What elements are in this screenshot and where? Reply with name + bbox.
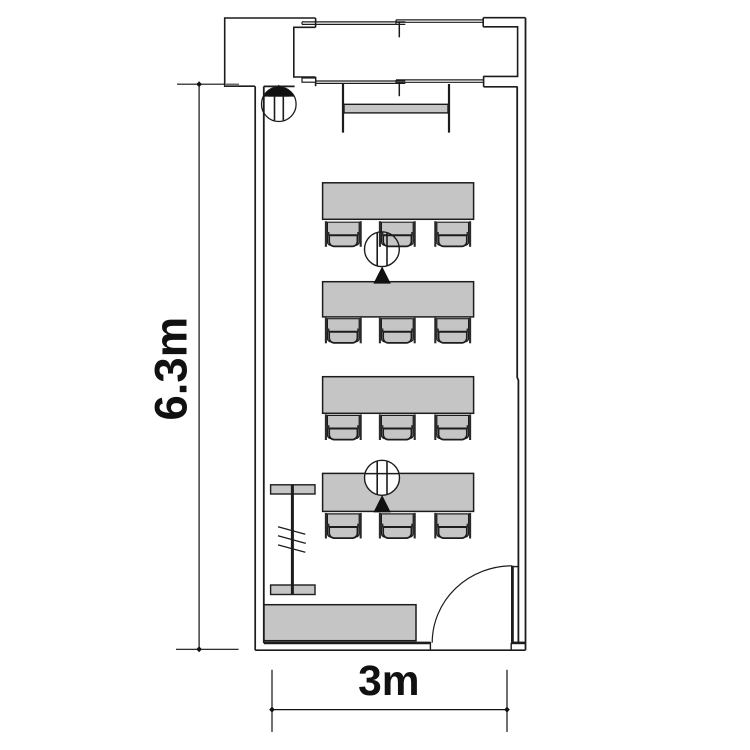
svg-text:3m: 3m bbox=[358, 658, 419, 705]
svg-text:6.3m: 6.3m bbox=[146, 317, 197, 421]
